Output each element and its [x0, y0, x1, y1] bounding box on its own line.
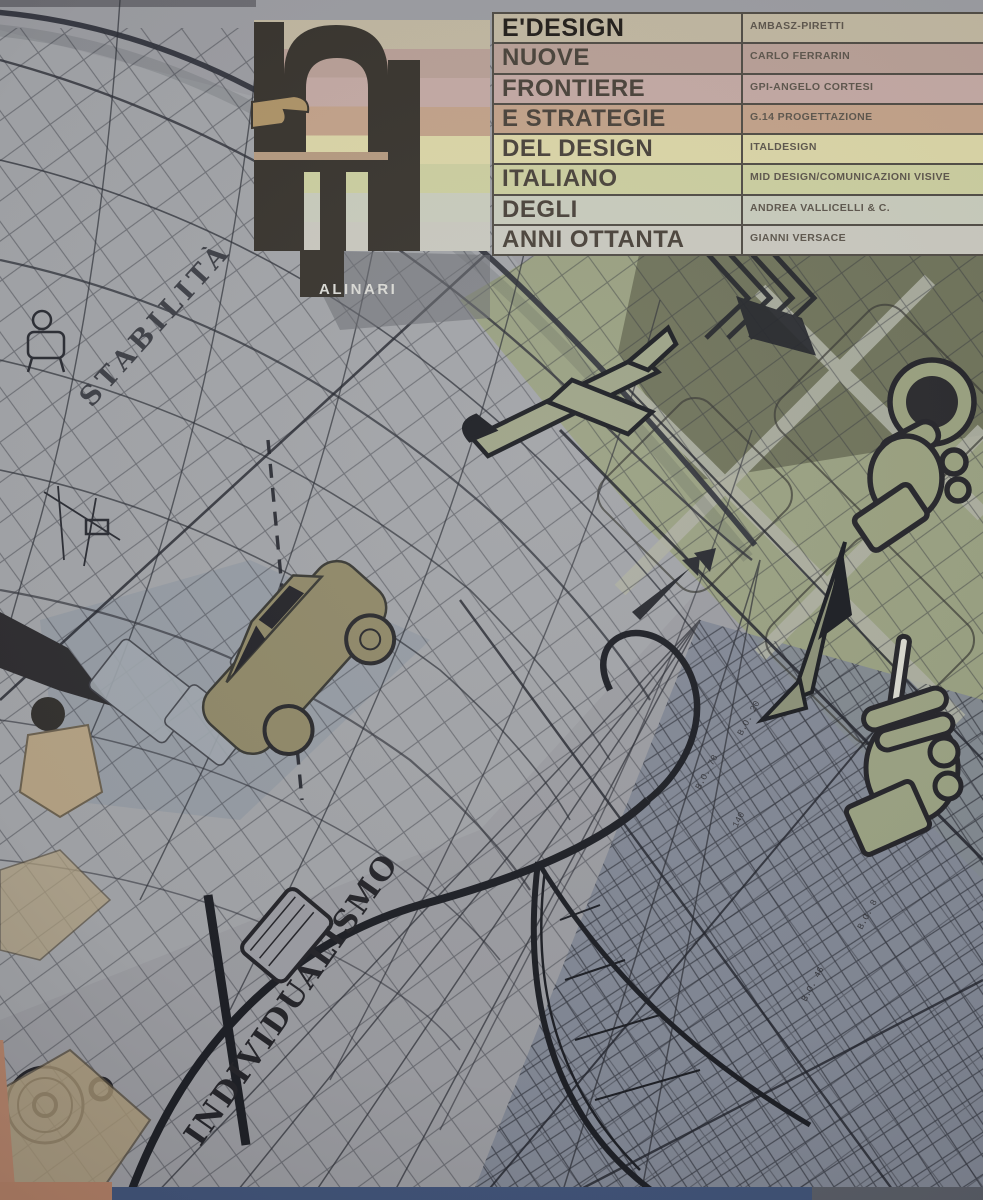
credit-text: ANDREA VALLICELLI & C. — [743, 196, 983, 214]
title-text: FRONTIERE — [494, 75, 741, 103]
top-edge-shadow — [0, 0, 256, 7]
title-row: E STRATEGIE G.14 PROGETTAZIONE — [494, 105, 983, 135]
ed-logo-letterform — [254, 20, 490, 251]
title-row: DEL DESIGN ITALDESIGN — [494, 135, 983, 165]
title-row: FRONTIERE GPI-ANGELO CORTESI — [494, 75, 983, 105]
title-text: DEL DESIGN — [494, 135, 741, 163]
title-text: DEGLI — [494, 196, 741, 224]
credit-text: AMBASZ-PIRETTI — [743, 14, 983, 32]
ed-logo — [254, 20, 490, 251]
credit-text: CARLO FERRARIN — [743, 44, 983, 62]
title-row: ANNI OTTANTA GIANNI VERSACE — [494, 226, 983, 256]
title-row: E'DESIGN AMBASZ-PIRETTI — [494, 14, 983, 44]
credit-text: GPI-ANGELO CORTESI — [743, 75, 983, 93]
wood-table-corner — [0, 1182, 112, 1200]
title-text: E'DESIGN — [494, 14, 741, 42]
credit-text: GIANNI VERSACE — [743, 226, 983, 244]
credit-text: G.14 PROGETTAZIONE — [743, 105, 983, 123]
title-table: E'DESIGN AMBASZ-PIRETTI NUOVE CARLO FERR… — [492, 12, 983, 256]
title-row: ITALIANO MID DESIGN/COMUNICAZIONI VISIVE — [494, 165, 983, 195]
publisher-name: ALINARI — [319, 281, 397, 298]
title-text: E STRATEGIE — [494, 105, 741, 133]
title-row: DEGLI ANDREA VALLICELLI & C. — [494, 196, 983, 226]
credit-text: MID DESIGN/COMUNICAZIONI VISIVE — [743, 165, 983, 183]
book-bottom-edge — [112, 1187, 812, 1200]
title-text: ANNI OTTANTA — [494, 226, 741, 254]
title-text: ITALIANO — [494, 165, 741, 193]
book-cover: STABILITÀ INDIVIDUALISMO B.O. 20 B.O. 46… — [0, 0, 983, 1200]
title-text: NUOVE — [494, 44, 741, 72]
title-row: NUOVE CARLO FERRARIN — [494, 44, 983, 74]
book-bottom-edge-dark — [812, 1187, 983, 1200]
book-cover-photo: STABILITÀ INDIVIDUALISMO B.O. 20 B.O. 46… — [0, 0, 983, 1200]
credit-text: ITALDESIGN — [743, 135, 983, 153]
